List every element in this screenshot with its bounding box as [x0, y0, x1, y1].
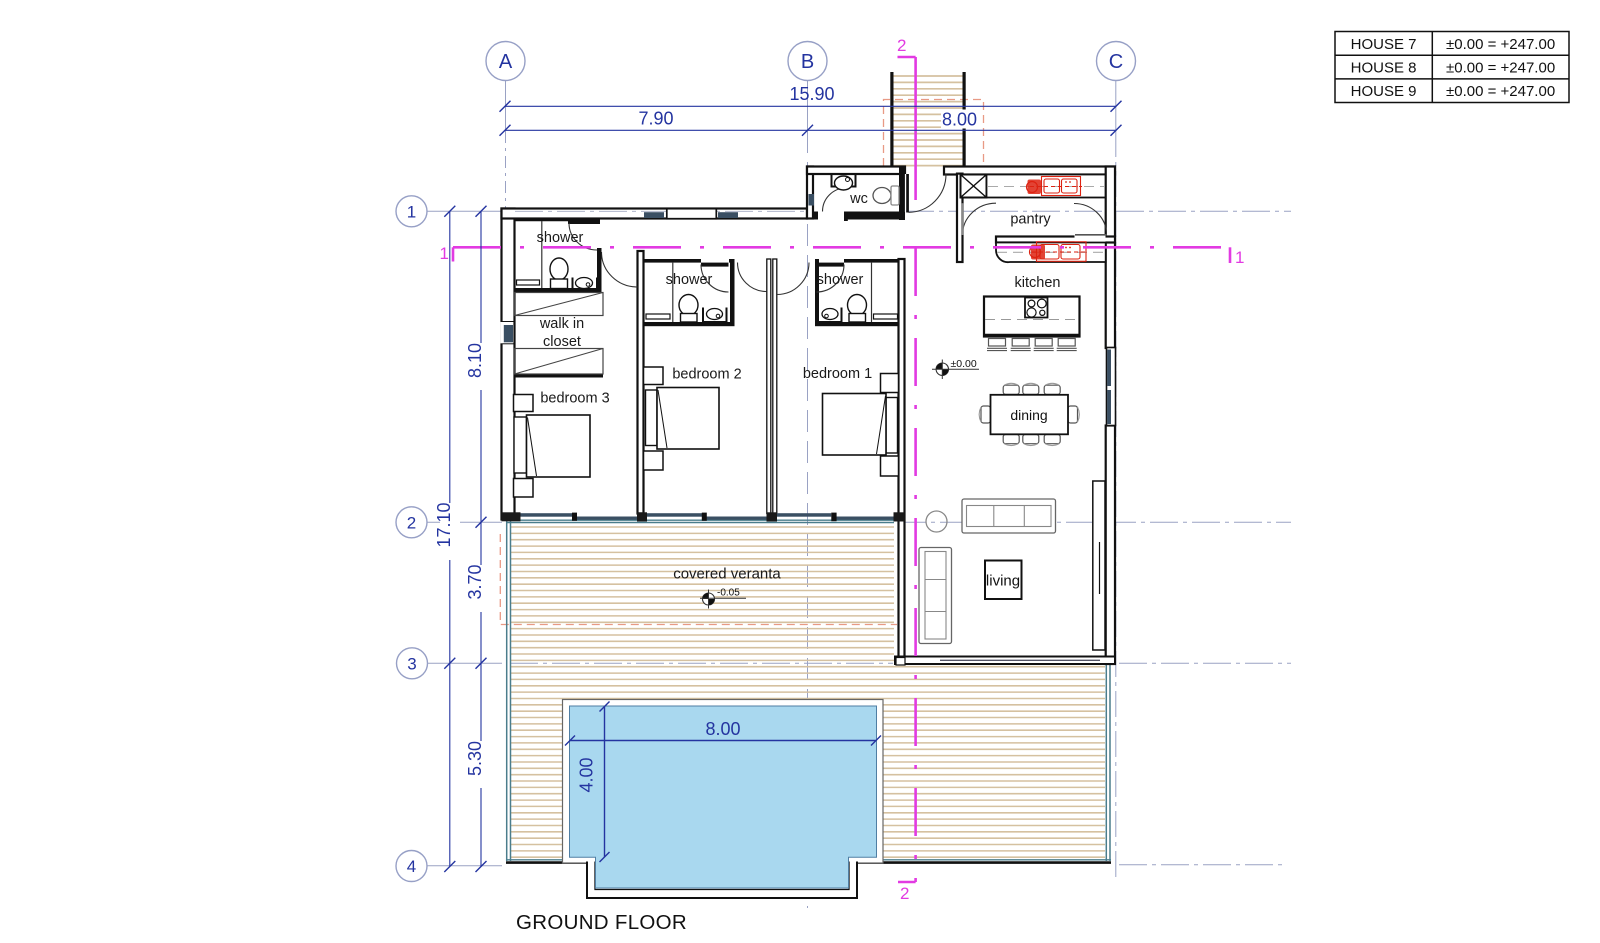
- svg-text:A: A: [499, 51, 513, 73]
- svg-text:±0.00: ±0.00: [951, 358, 977, 370]
- svg-text:15.90: 15.90: [789, 84, 834, 104]
- svg-text:shower: shower: [666, 272, 713, 288]
- svg-text:±0.00 = +247.00: ±0.00 = +247.00: [1446, 83, 1555, 100]
- svg-text:C: C: [1109, 51, 1123, 73]
- svg-text:bedroom 1: bedroom 1: [803, 366, 872, 382]
- svg-text:3.70: 3.70: [465, 564, 485, 599]
- svg-text:shower: shower: [537, 230, 584, 246]
- svg-text:1: 1: [407, 202, 416, 221]
- svg-text:B: B: [801, 51, 814, 73]
- svg-text:2: 2: [900, 884, 909, 903]
- svg-text:2: 2: [897, 36, 906, 55]
- svg-text:bedroom 3: bedroom 3: [540, 391, 609, 407]
- svg-text:walk in: walk in: [539, 316, 584, 332]
- svg-text:GROUND FLOOR: GROUND FLOOR: [516, 911, 687, 934]
- svg-text:-0.05: -0.05: [717, 588, 740, 599]
- svg-text:covered veranta: covered veranta: [673, 566, 781, 583]
- svg-text:HOUSE 9: HOUSE 9: [1351, 83, 1417, 100]
- svg-text:2: 2: [407, 513, 416, 532]
- svg-text:1: 1: [1235, 248, 1244, 267]
- svg-text:17.10: 17.10: [434, 502, 454, 547]
- svg-text:5.30: 5.30: [465, 741, 485, 776]
- svg-text:closet: closet: [543, 334, 581, 350]
- svg-text:HOUSE 8: HOUSE 8: [1351, 60, 1417, 77]
- svg-text:living: living: [986, 573, 1020, 590]
- svg-text:7.90: 7.90: [638, 109, 673, 129]
- svg-text:±0.00 = +247.00: ±0.00 = +247.00: [1446, 60, 1555, 77]
- svg-text:3: 3: [407, 654, 416, 673]
- svg-text:8.00: 8.00: [942, 110, 977, 130]
- svg-text:shower: shower: [817, 272, 864, 288]
- svg-text:pantry: pantry: [1010, 212, 1051, 228]
- svg-text:8.10: 8.10: [465, 343, 485, 378]
- svg-text:1: 1: [440, 244, 449, 263]
- svg-text:4: 4: [407, 857, 416, 876]
- svg-text:wc: wc: [849, 191, 868, 207]
- svg-text:kitchen: kitchen: [1015, 275, 1061, 291]
- svg-text:4.00: 4.00: [577, 757, 597, 792]
- svg-text:±0.00 = +247.00: ±0.00 = +247.00: [1446, 36, 1555, 53]
- svg-text:bedroom 2: bedroom 2: [672, 367, 741, 383]
- svg-text:dining: dining: [1010, 407, 1047, 423]
- svg-text:HOUSE 7: HOUSE 7: [1351, 36, 1417, 53]
- svg-text:8.00: 8.00: [705, 719, 740, 739]
